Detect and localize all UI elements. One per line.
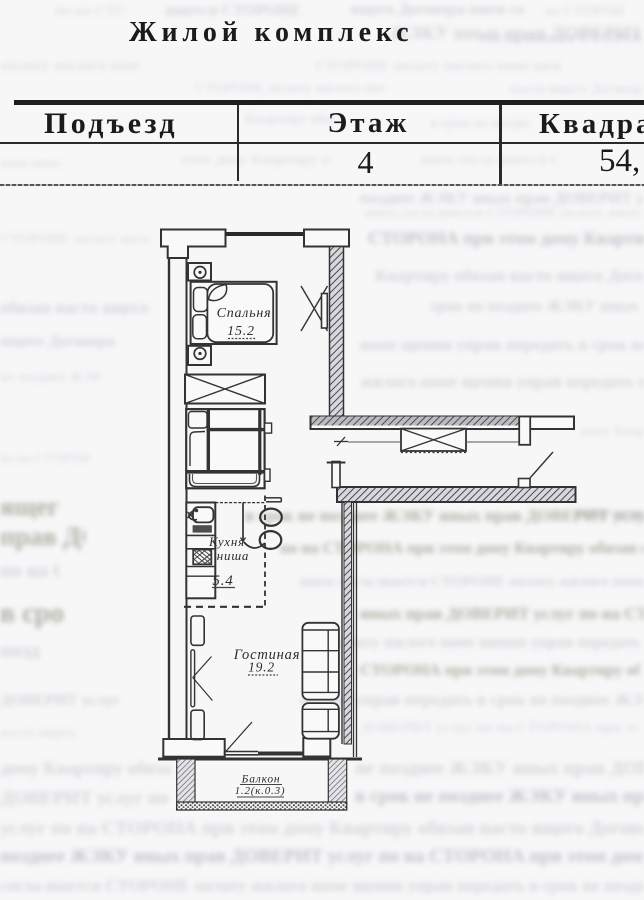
svg-text:1.2(к.0.3): 1.2(к.0.3) [235,785,286,797]
svg-text:15.2: 15.2 [227,324,255,339]
svg-text:ниша: ниша [217,548,249,563]
svg-text:5.4: 5.4 [212,573,233,589]
svg-text:Спальня: Спальня [217,306,272,321]
svg-text:Балкон: Балкон [241,774,281,786]
svg-text:19.2: 19.2 [248,660,275,675]
svg-text:Кухня: Кухня [208,534,245,549]
